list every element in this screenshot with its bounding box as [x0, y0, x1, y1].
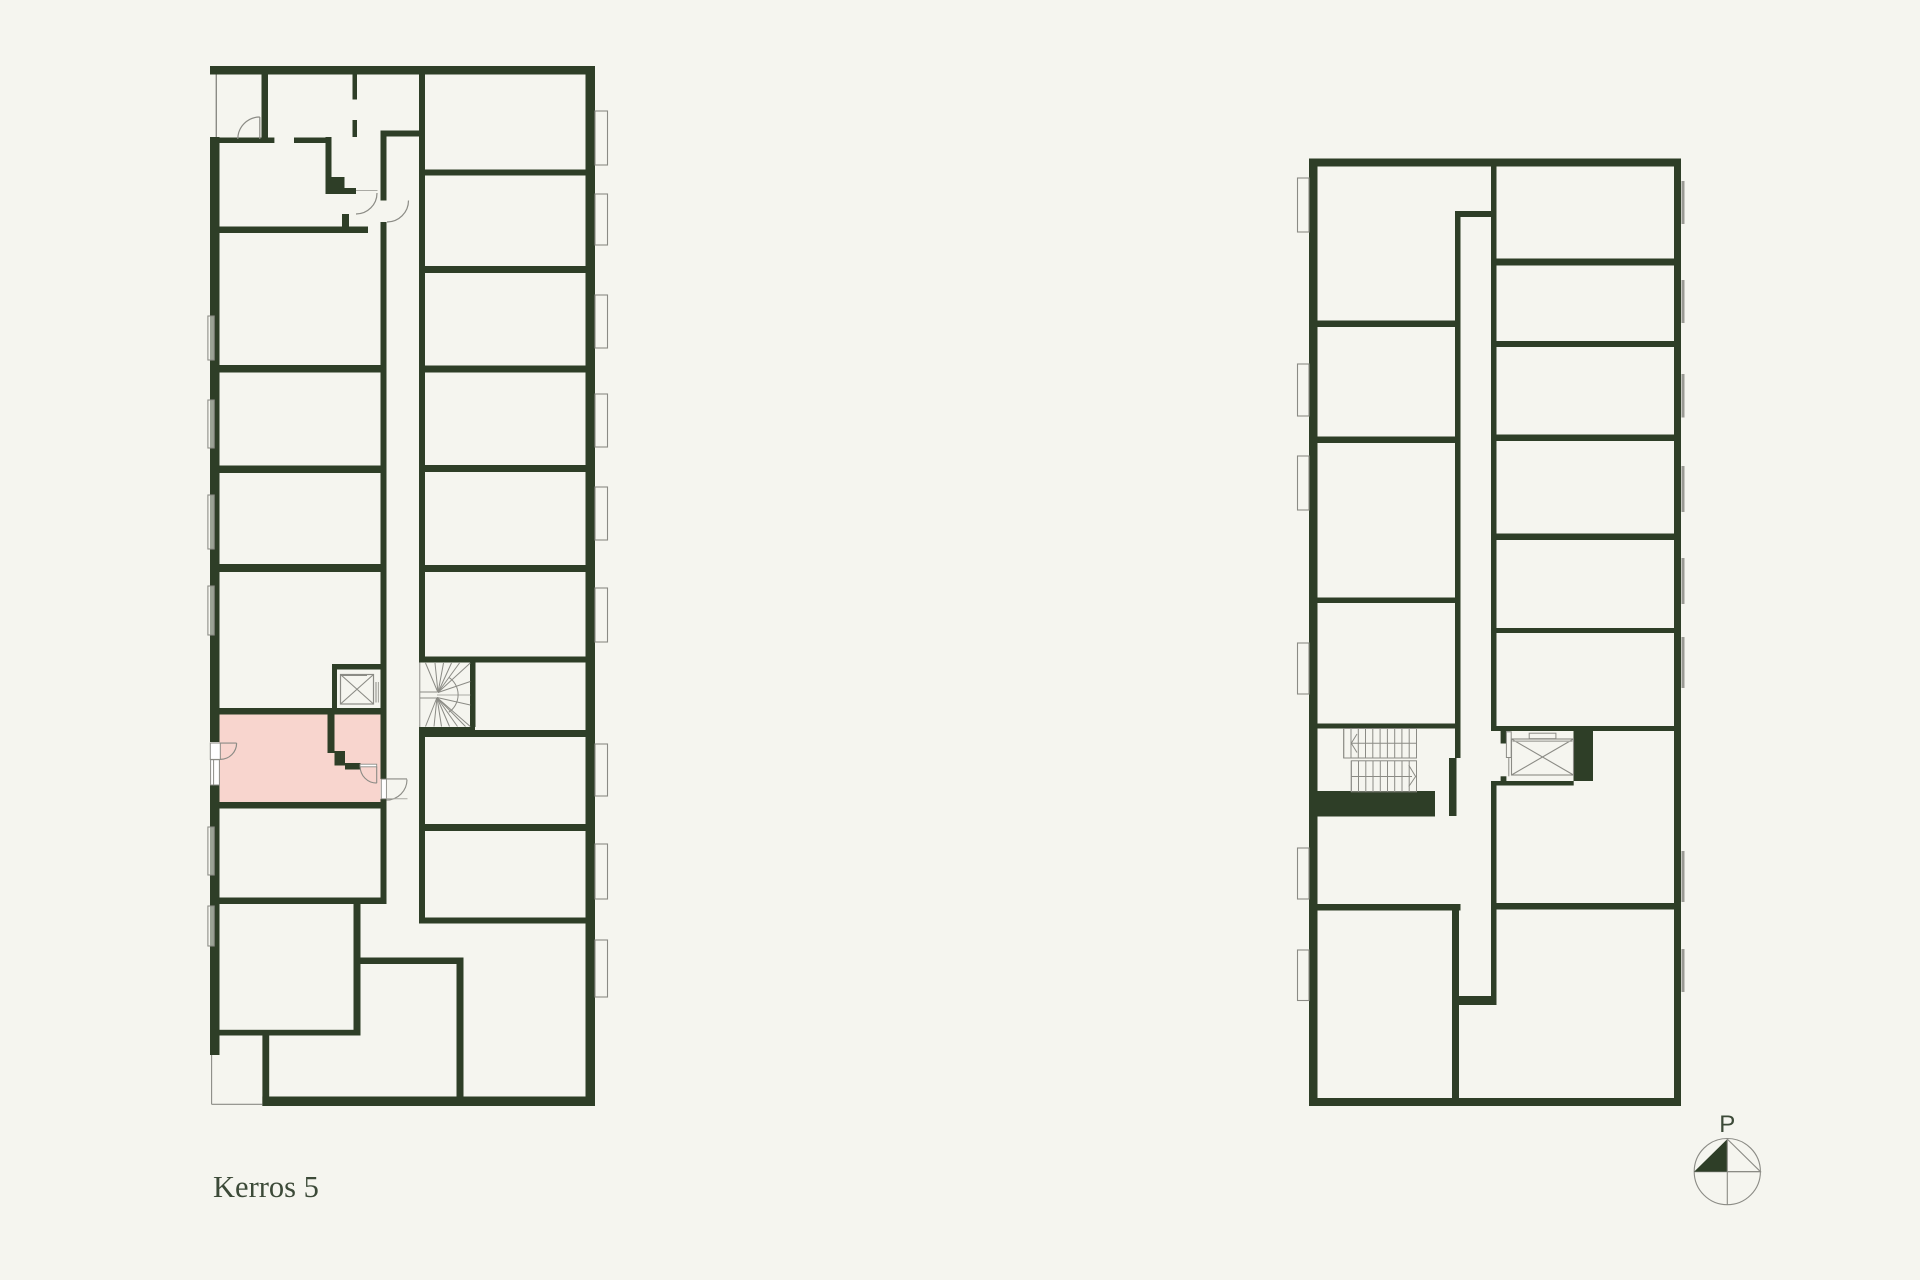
- svg-text:P: P: [1719, 1111, 1735, 1138]
- svg-text:Kerros 5: Kerros 5: [213, 1170, 319, 1204]
